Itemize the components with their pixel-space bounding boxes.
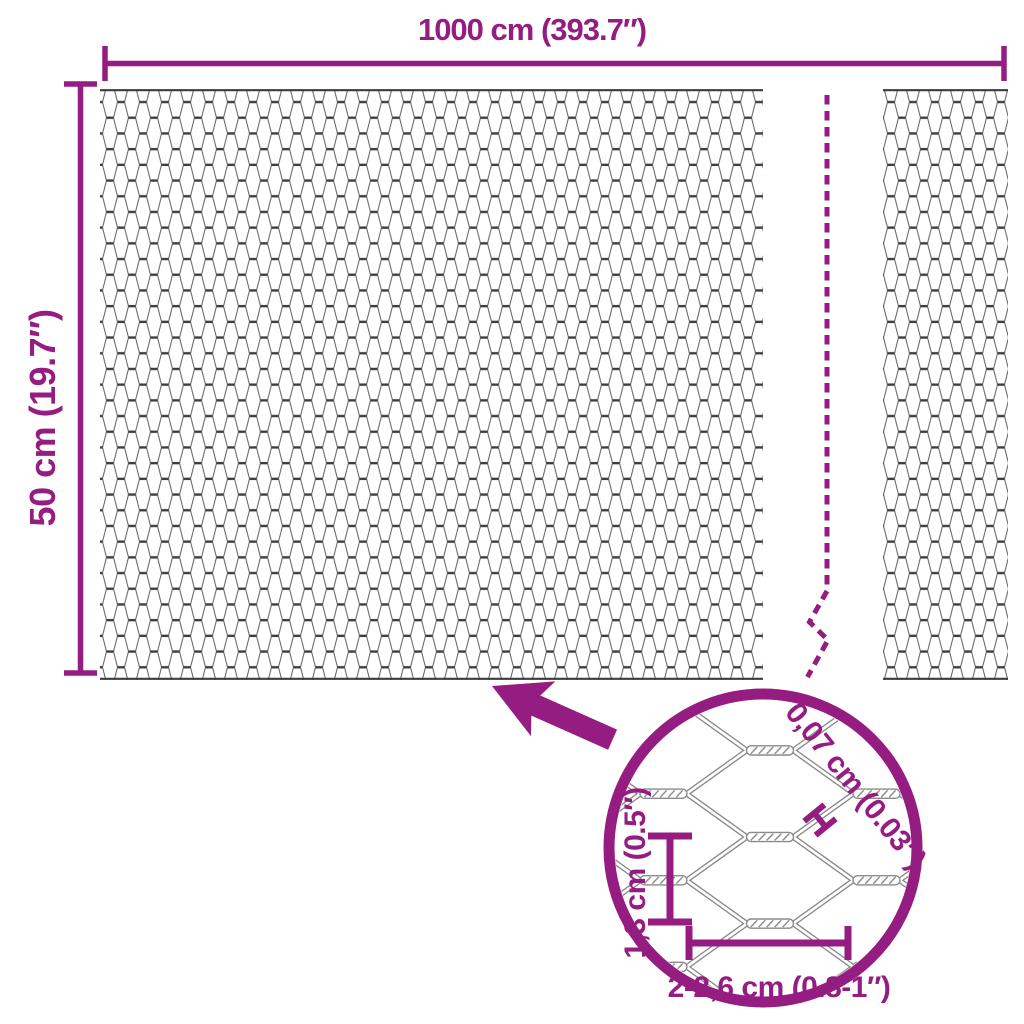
cell-width-label: 2-2,6 cm (0.8-1″) — [668, 971, 891, 1004]
magnifier-circle — [609, 694, 917, 1002]
cell-height-label: 1,3 cm (0.5″) — [619, 787, 652, 958]
width-dimension-line — [105, 46, 1004, 81]
height-dimension-label: 50 cm (19.7″) — [22, 310, 63, 527]
mesh-break-dashed-line — [808, 95, 829, 677]
diagram-canvas: 1000 cm (393.7″) 50 cm (19.7″) 1,3 cm (0… — [0, 0, 1024, 1024]
mesh-panel-left — [100, 89, 763, 680]
mesh-panel-right — [883, 89, 1008, 680]
height-dimension-line — [64, 84, 97, 673]
width-dimension-label: 1000 cm (393.7″) — [418, 12, 646, 47]
product-dimension-diagram: 1000 cm (393.7″) 50 cm (19.7″) 1,3 cm (0… — [0, 0, 1024, 1024]
